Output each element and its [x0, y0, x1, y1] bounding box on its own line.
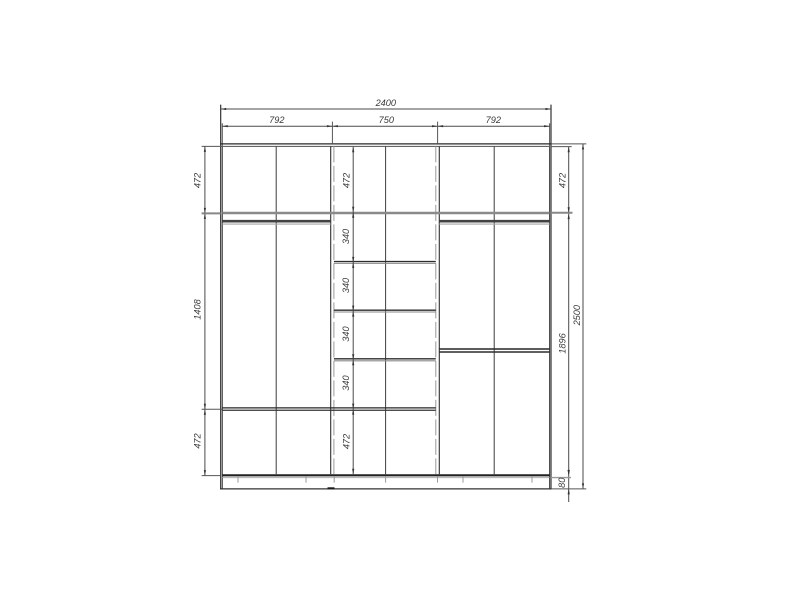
- svg-text:2400: 2400: [375, 98, 397, 108]
- svg-text:1896: 1896: [558, 332, 568, 353]
- svg-text:472: 472: [341, 173, 351, 188]
- svg-text:792: 792: [269, 115, 284, 125]
- svg-text:340: 340: [341, 277, 351, 293]
- svg-text:750: 750: [379, 115, 395, 125]
- svg-text:472: 472: [192, 433, 202, 448]
- svg-text:472: 472: [341, 434, 351, 449]
- svg-text:792: 792: [486, 115, 501, 125]
- svg-text:2500: 2500: [572, 304, 582, 326]
- svg-text:340: 340: [341, 228, 351, 244]
- svg-text:340: 340: [341, 326, 351, 342]
- svg-text:80: 80: [557, 477, 567, 488]
- svg-text:472: 472: [192, 173, 202, 188]
- svg-text:472: 472: [557, 173, 567, 188]
- svg-text:340: 340: [341, 375, 351, 391]
- svg-text:1408: 1408: [192, 298, 202, 319]
